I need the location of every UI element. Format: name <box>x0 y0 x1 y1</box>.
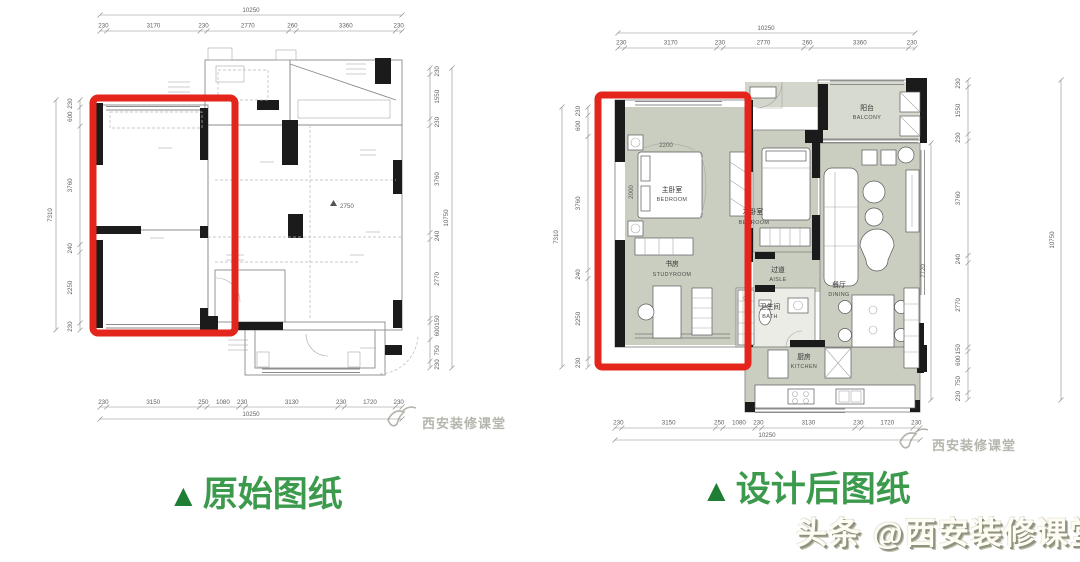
dim-label: 230 <box>911 420 922 427</box>
dim-label: 3360 <box>853 40 867 47</box>
dim-label: 10250 <box>757 25 775 32</box>
dimension-chain: 10750 <box>1049 78 1064 403</box>
dim-label: 1080 <box>732 420 746 427</box>
dim-label: 230 <box>753 420 764 427</box>
label-aisle-en: AISLE <box>769 277 786 283</box>
dim-label: 230 <box>67 98 74 109</box>
dim-label: 2770 <box>955 297 962 311</box>
dim-label: 1550 <box>434 89 441 103</box>
dim-label: 230 <box>613 420 624 427</box>
dimension-chain: 2303150250108023031302301720230 <box>98 399 405 410</box>
dim-label: 2770 <box>757 40 771 47</box>
dim-label: 260 <box>802 40 813 47</box>
dim-label: 230 <box>394 399 405 406</box>
dim-label: 3360 <box>339 23 353 30</box>
dim-label: 10750 <box>1049 231 1056 249</box>
dimension-chain: 230317023027702603360230 <box>98 23 405 34</box>
dim-label: 3760 <box>434 172 441 186</box>
dim-label: 240 <box>955 253 962 264</box>
dim-label: 10250 <box>758 432 776 439</box>
dim-label: 230 <box>955 390 962 401</box>
label-aisle-cn: 过道 <box>771 265 785 274</box>
dim-label: 750 <box>434 345 441 356</box>
dimension-chain: 23060037602402250230 <box>575 105 591 370</box>
dim-label: 10250 <box>242 411 260 418</box>
brand-watermark: 西安装修课堂 <box>900 429 1016 453</box>
dim-label: 2250 <box>575 311 582 325</box>
dim-label: 230 <box>715 40 726 47</box>
dim-label: 3170 <box>147 23 161 30</box>
label-master-en: BEDROOM <box>657 197 688 203</box>
dim-label: 240 <box>434 230 441 241</box>
bookshelf <box>692 288 712 335</box>
caption-original-text: 原始图纸 <box>203 475 343 514</box>
dim-label: 2770 <box>434 271 441 285</box>
label-study-cn: 书房 <box>665 259 679 268</box>
dim-label: 230 <box>955 132 962 143</box>
level-mark-icon <box>330 200 337 206</box>
watermark-text: 西安装修课堂 <box>932 438 1016 453</box>
dim-label: 750 <box>955 375 962 386</box>
watermark-bird-icon <box>900 429 928 448</box>
label-study-en: STUDYROOM <box>653 272 692 278</box>
dim-label: 2250 <box>67 280 74 294</box>
caption-designed: ▲设计后图纸 <box>701 472 911 507</box>
caption-original: ▲原始图纸 <box>168 477 343 512</box>
dimension-chain: 2303150250108023031302301720230 <box>613 420 923 431</box>
dimension-chain: 10750 <box>443 66 455 371</box>
dim-label: 600 <box>434 326 441 337</box>
dim-label: 230 <box>955 78 962 89</box>
dim-label: 7310 <box>553 230 560 244</box>
dim-label: 230 <box>434 66 441 77</box>
dim-label: 600 <box>575 120 582 131</box>
dimension-chain: 7310 <box>47 98 59 333</box>
dim-label: 3760 <box>955 191 962 205</box>
dim-label: 230 <box>98 23 109 30</box>
dimension-chain: 10250 <box>98 411 405 422</box>
dim-label: 1720 <box>363 399 377 406</box>
dim-label: 230 <box>98 399 109 406</box>
dim-label: 3130 <box>285 399 299 406</box>
dim-label: 230 <box>853 420 864 427</box>
dim-label: 230 <box>575 105 582 116</box>
brand-watermark: 西安装修课堂 <box>388 407 506 431</box>
dim-label: 230 <box>616 40 627 47</box>
article-image: 2750 西安装修课堂 2303170230277026033602301025… <box>0 0 1080 562</box>
label-kitchen-cn: 厨房 <box>797 352 811 361</box>
dim-label: 600 <box>67 111 74 122</box>
master-bed <box>638 143 706 218</box>
dim-label: 1550 <box>955 103 962 117</box>
watermark-bird-icon <box>388 407 416 426</box>
watermark-text: 西安装修课堂 <box>422 416 506 431</box>
dimension-chain: 230155023037602402770150600750230 <box>955 78 971 403</box>
dim-label: 230 <box>575 357 582 368</box>
dim-label: 230 <box>434 116 441 127</box>
dim-label: 230 <box>237 399 248 406</box>
second-bed <box>762 148 810 220</box>
caption-designed-text: 设计后图纸 <box>736 470 911 509</box>
dim-label: 150 <box>434 315 441 326</box>
triangle-marker-icon: ▲ <box>168 478 199 513</box>
dim-label: 250 <box>198 399 209 406</box>
dimension-chain: 230155023037602402770150600750230 <box>428 66 442 371</box>
label-dining-en: DINING <box>828 292 849 298</box>
dim-label: 7720 <box>920 264 927 278</box>
dim-label: 10250 <box>242 7 260 14</box>
label-master-cn: 主卧室 <box>662 185 683 194</box>
tv-cabinet <box>906 170 919 232</box>
dimension-chain: 7310 <box>553 105 565 370</box>
bed-depth-dim: 2000 <box>628 185 635 199</box>
label-bath-cn: 卫生间 <box>760 302 781 311</box>
dim-label: 250 <box>714 420 725 427</box>
platform-watermark: 头条 @西安装修课堂 <box>796 518 1080 549</box>
dimension-chain: 10250 <box>616 25 918 36</box>
dim-label: 3150 <box>662 420 676 427</box>
dim-label: 260 <box>287 23 298 30</box>
dim-label: 230 <box>198 23 209 30</box>
label-balcony-cn: 阳台 <box>860 103 874 112</box>
plant <box>898 147 914 163</box>
label-second-en: BEDROOM <box>739 220 770 226</box>
dim-label: 10750 <box>443 209 450 227</box>
dim-label: 1080 <box>216 399 230 406</box>
dimension-chain: 230317023027702603360230 <box>616 40 918 51</box>
dim-label: 240 <box>575 269 582 280</box>
label-balcony-en: BALCONY <box>853 115 882 121</box>
dimension-chain: 23060037602402250230 <box>67 98 83 333</box>
original-floorplan-image: 2750 西安装修课堂 2303170230277026033602301025… <box>30 0 535 450</box>
dim-label: 3150 <box>146 399 160 406</box>
dim-label: 2770 <box>241 23 255 30</box>
dim-label: 600 <box>955 355 962 366</box>
dim-label: 230 <box>394 23 405 30</box>
dimension-chain: 10250 <box>98 7 405 18</box>
designed-floorplan-image: 2200 2000 <box>540 0 1080 475</box>
label-bath-en: BATH <box>762 314 778 320</box>
dim-label: 3130 <box>801 420 815 427</box>
second-wardrobe <box>760 228 810 246</box>
dim-label: 230 <box>434 359 441 370</box>
dim-label: 230 <box>336 399 347 406</box>
triangle-marker-icon: ▲ <box>701 473 732 508</box>
dim-label: 7310 <box>47 208 54 222</box>
dim-label: 240 <box>67 243 74 254</box>
dim-label: 230 <box>67 321 74 332</box>
dim-label: 3760 <box>67 178 74 192</box>
dim-label: 3760 <box>575 196 582 210</box>
highlight-box-original <box>93 98 235 333</box>
bed-width-dim: 2200 <box>659 142 673 149</box>
dimension-chain: 10250 <box>613 432 923 443</box>
label-dining-cn: 餐厅 <box>832 280 846 289</box>
dim-label: 230 <box>907 40 918 47</box>
dim-label: 150 <box>955 344 962 355</box>
label-kitchen-en: KITCHEN <box>791 364 817 370</box>
dim-label: 3170 <box>664 40 678 47</box>
level-mark-value: 2750 <box>340 203 354 210</box>
sofa <box>824 168 858 286</box>
dim-label: 1720 <box>880 420 894 427</box>
